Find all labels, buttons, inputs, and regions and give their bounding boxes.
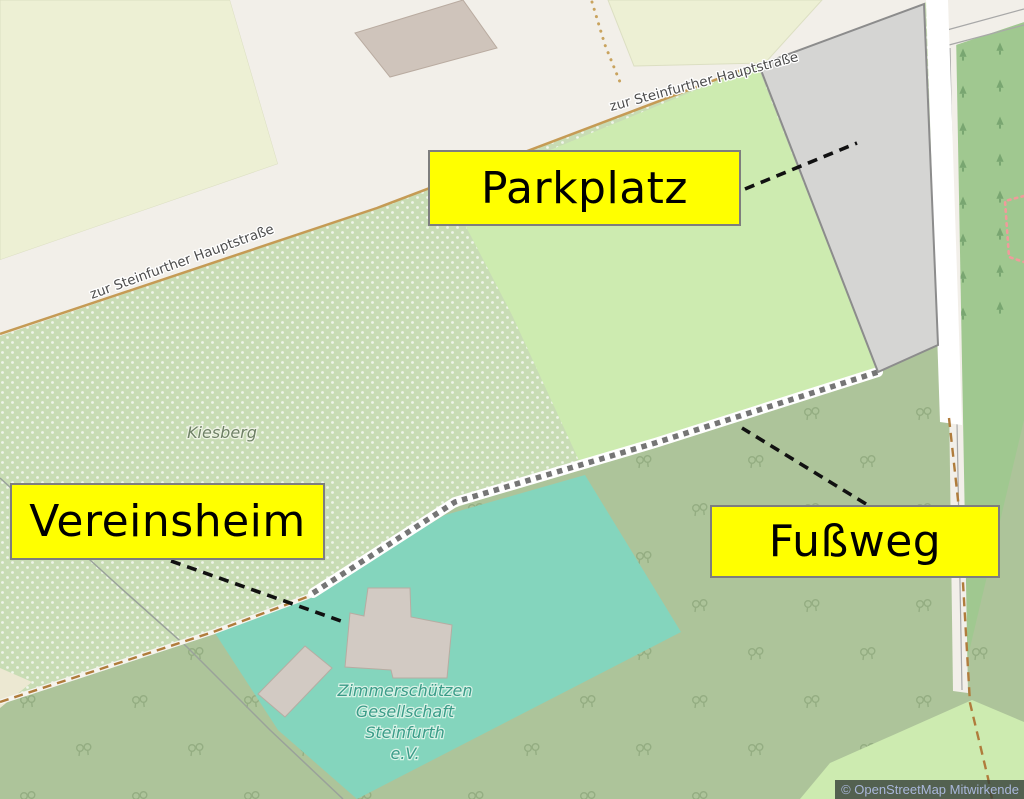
osm-attribution[interactable]: © OpenStreetMap Mitwirkende [835,780,1024,799]
svg-text:Zimmerschützen: Zimmerschützen [336,681,472,700]
callout-vereinsheim: Vereinsheim [10,483,325,560]
hill-label: Kiesberg [187,423,257,442]
callout-fussweg: Fußweg [710,505,1000,578]
callout-fussweg-label: Fußweg [769,516,942,567]
svg-text:Gesellschaft: Gesellschaft [356,702,455,721]
svg-text:Steinfurth: Steinfurth [365,723,445,742]
callout-parkplatz: Parkplatz [428,150,741,226]
callout-vereinsheim-label: Vereinsheim [29,496,306,547]
callout-parkplatz-label: Parkplatz [481,163,688,214]
osm-attribution-link[interactable]: © OpenStreetMap Mitwirkende [841,782,1019,797]
annotated-map-image: zur Steinfurther Hauptstraße zur Steinfu… [0,0,1024,799]
osm-map-canvas: zur Steinfurther Hauptstraße zur Steinfu… [0,0,1024,799]
svg-text:e.V.: e.V. [390,744,419,763]
